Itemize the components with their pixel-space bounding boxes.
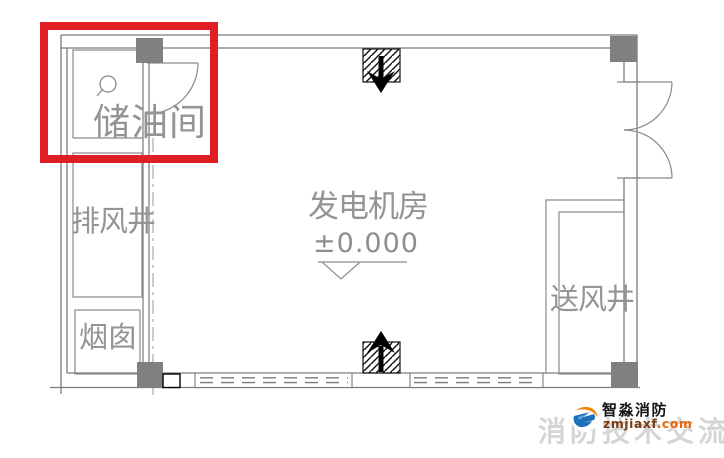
brand-url: zmjiaxf.com	[603, 418, 692, 431]
room-label-supply-shaft: 送风井	[550, 285, 634, 314]
small-wall-box	[163, 374, 180, 388]
elevation-value: ±0.000	[313, 230, 419, 257]
floor-plan-image: 储油间 排风井 烟囱 发电机房 ±0.000 送风井 消防技术交流 智淼消防 z…	[0, 0, 724, 458]
louver-right	[410, 373, 543, 388]
drain-symbol	[97, 76, 116, 96]
brand-url-main: zmjiaxf	[603, 416, 657, 431]
room-label-chimney: 烟囱	[79, 323, 137, 352]
room-label-oil-storage: 储油间	[93, 104, 207, 141]
room-label-generator-room: 发电机房	[308, 192, 428, 223]
brand-url-suffix: .com	[657, 416, 693, 431]
louver-left	[195, 373, 352, 388]
double-door	[617, 82, 672, 178]
elevation-marker	[318, 262, 407, 279]
room-label-exhaust-shaft: 排风井	[71, 207, 155, 236]
brand-logo-icon	[570, 403, 600, 433]
bottom-vent-icon	[363, 331, 400, 373]
top-vent-icon	[363, 49, 400, 93]
